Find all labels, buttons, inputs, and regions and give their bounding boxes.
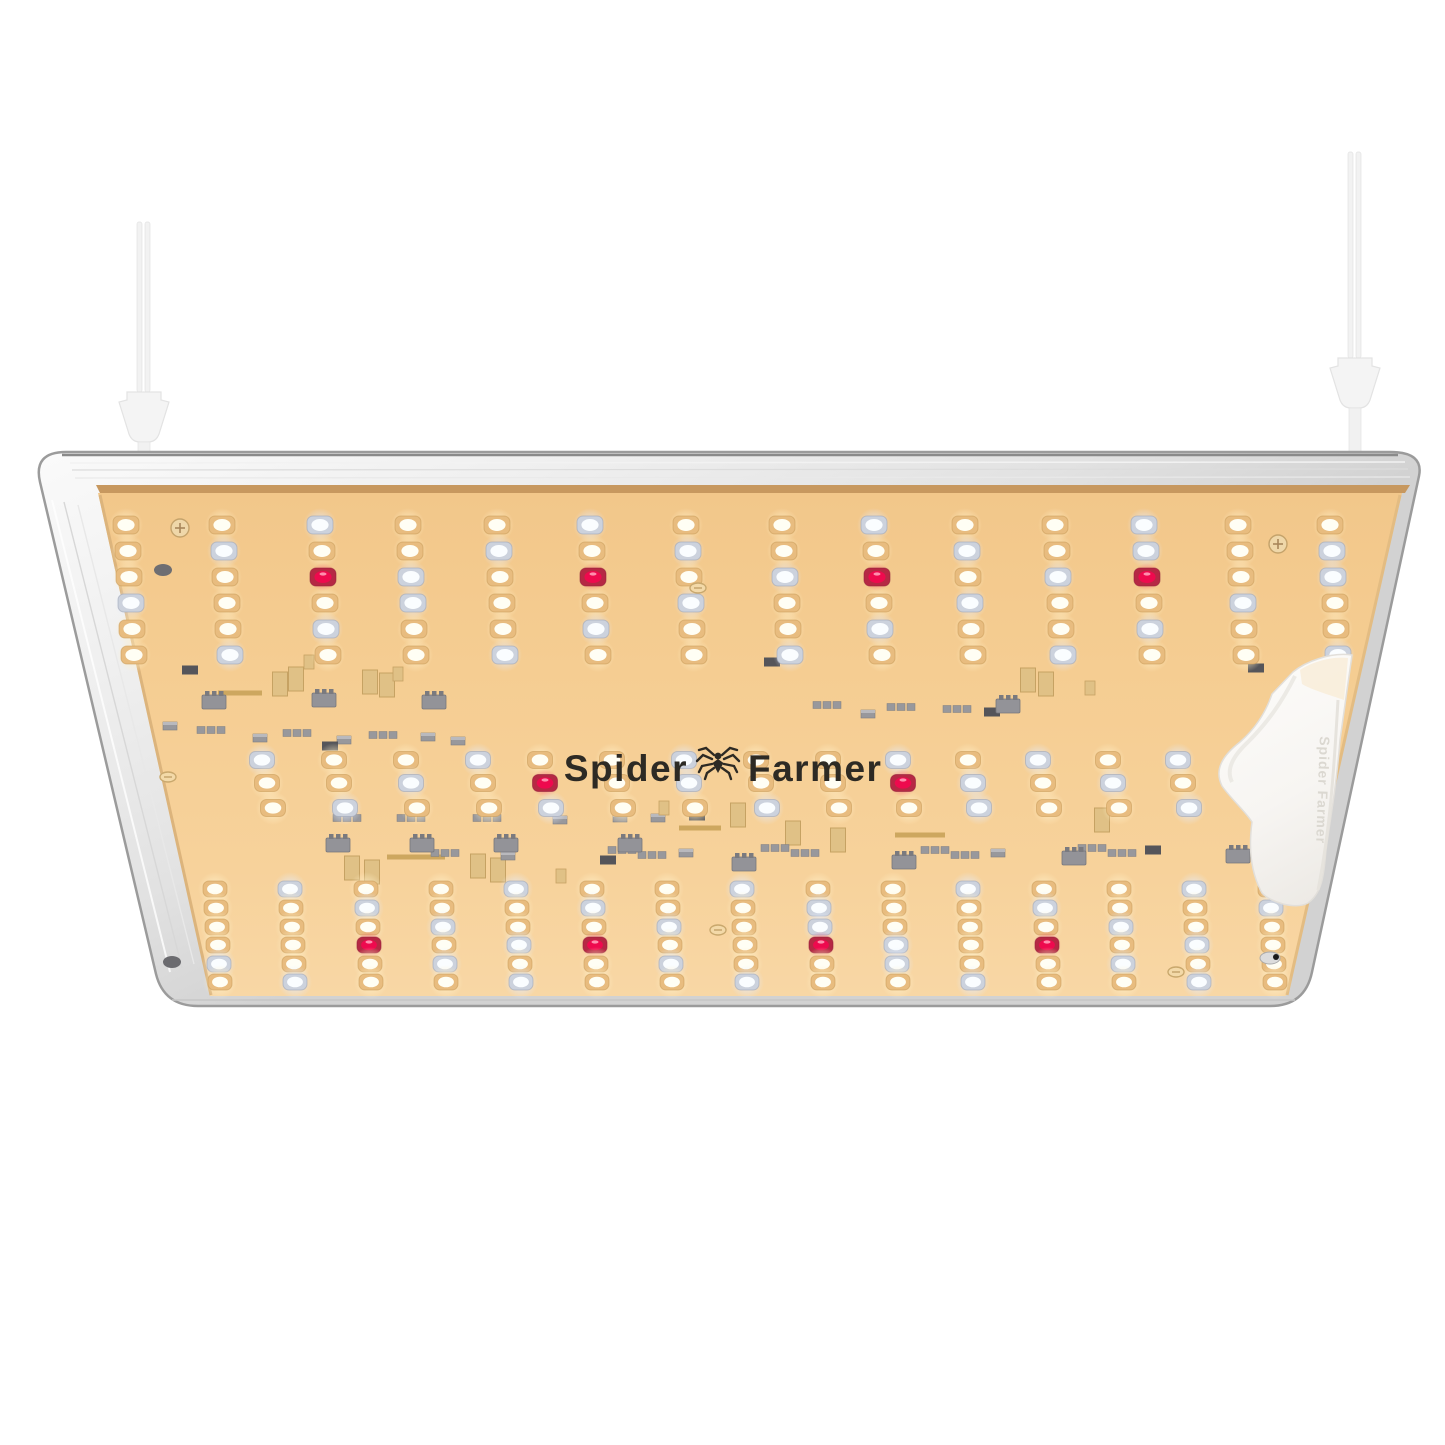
- led-warm-white: [400, 791, 434, 825]
- led-warm-white: [581, 638, 615, 672]
- component-gp: [1039, 672, 1054, 696]
- grow-light-image: Spider Farmer Spider Farmer: [0, 0, 1445, 1445]
- component-gp: [289, 667, 304, 691]
- led-warm-white: [1229, 638, 1263, 672]
- component-r: [991, 849, 1005, 857]
- component-gp: [380, 673, 395, 697]
- led-cool-white: [504, 965, 538, 999]
- led-cool-white: [1182, 965, 1216, 999]
- component-gb: [679, 826, 721, 831]
- component-r: [679, 849, 693, 857]
- mount-hole-left: [163, 956, 181, 968]
- led-warm-white: [311, 638, 345, 672]
- component-ic: [1062, 847, 1086, 865]
- component-gb: [895, 833, 945, 838]
- led-warm-white: [678, 791, 712, 825]
- led-warm-white: [892, 791, 926, 825]
- led-warm-white: [881, 965, 915, 999]
- component-r: [451, 737, 465, 745]
- rivet-hole: [710, 925, 726, 935]
- component-rc: [638, 852, 666, 859]
- cross-screw: [171, 519, 189, 537]
- frame-notch: [154, 564, 172, 576]
- component-ic: [732, 853, 756, 871]
- product-photo: Spider Farmer Spider Farmer: [0, 0, 1445, 1445]
- component-rc: [1108, 850, 1136, 857]
- component-ic: [422, 691, 446, 709]
- led-warm-white: [956, 638, 990, 672]
- led-warm-white: [203, 965, 237, 999]
- component-rc: [761, 845, 789, 852]
- led-cool-white: [730, 965, 764, 999]
- component-rd: [182, 666, 198, 675]
- led-warm-white: [1102, 791, 1136, 825]
- led-warm-white: [655, 965, 689, 999]
- component-rc: [921, 847, 949, 854]
- component-r: [501, 852, 515, 860]
- board-edge-strip: [96, 485, 1410, 493]
- component-gp: [831, 828, 846, 852]
- led-cool-white: [750, 791, 784, 825]
- led-cool-white: [1046, 638, 1080, 672]
- led-warm-white: [399, 638, 433, 672]
- led-warm-white: [256, 791, 290, 825]
- led-cool-white: [278, 965, 312, 999]
- component-ic: [312, 689, 336, 707]
- component-rd: [600, 856, 616, 865]
- component-ic: [892, 851, 916, 869]
- cross-screw: [1269, 535, 1287, 553]
- led-warm-white: [429, 965, 463, 999]
- component-ic: [618, 834, 642, 852]
- component-r: [861, 710, 875, 718]
- component-ic: [494, 834, 518, 852]
- mount-hole-right: [1260, 952, 1280, 964]
- component-gp: [363, 670, 378, 694]
- component-rc: [943, 706, 971, 713]
- component-ic: [1226, 845, 1250, 863]
- component-gs: [659, 801, 669, 815]
- led-cool-white: [1172, 791, 1206, 825]
- hanging-wire: [119, 222, 169, 456]
- component-r: [163, 722, 177, 730]
- led-cool-white: [328, 791, 362, 825]
- led-warm-white: [305, 534, 339, 568]
- component-gs: [393, 667, 403, 681]
- brushed-line: [70, 462, 1405, 463]
- logo-text-right: Farmer: [748, 748, 882, 789]
- led-warm-white: [1135, 638, 1169, 672]
- component-gp: [273, 672, 288, 696]
- rivet-hole: [690, 583, 706, 593]
- component-ic: [202, 691, 226, 709]
- led-cool-white: [488, 638, 522, 672]
- component-rc: [369, 732, 397, 739]
- component-rd: [1145, 846, 1161, 855]
- led-warm-white: [117, 638, 151, 672]
- component-gs: [556, 869, 566, 883]
- led-warm-white: [1258, 965, 1292, 999]
- component-gp: [471, 854, 486, 878]
- led-warm-white: [1032, 965, 1066, 999]
- led-cool-white: [534, 791, 568, 825]
- led-warm-white: [865, 638, 899, 672]
- rivet-hole: [1168, 967, 1184, 977]
- led-warm-white: [580, 965, 614, 999]
- component-gp: [731, 803, 746, 827]
- component-rc: [813, 702, 841, 709]
- led-cool-white: [1129, 534, 1163, 568]
- component-ic: [410, 834, 434, 852]
- led-warm-white: [575, 534, 609, 568]
- led-warm-white: [859, 534, 893, 568]
- led-warm-white: [354, 965, 388, 999]
- led-cool-white: [956, 965, 990, 999]
- component-r: [337, 736, 351, 744]
- led-warm-white: [822, 791, 856, 825]
- led-warm-white: [472, 791, 506, 825]
- component-r: [253, 734, 267, 742]
- component-ic: [326, 834, 350, 852]
- component-rc: [431, 850, 459, 857]
- led-warm-white: [806, 965, 840, 999]
- rivet-hole: [160, 772, 176, 782]
- led-warm-white: [677, 638, 711, 672]
- component-rc: [887, 704, 915, 711]
- component-gp: [1021, 668, 1036, 692]
- led-warm-white: [1032, 791, 1066, 825]
- component-rc: [283, 730, 311, 737]
- hanging-wire: [1330, 152, 1380, 456]
- led-warm-white: [606, 791, 640, 825]
- led-cool-white: [213, 638, 247, 672]
- component-r: [421, 733, 435, 741]
- logo-text-left: Spider: [564, 748, 688, 789]
- component-gs: [1085, 681, 1095, 695]
- component-rc: [951, 852, 979, 859]
- component-ic: [996, 695, 1020, 713]
- component-gp: [786, 821, 801, 845]
- component-rc: [791, 850, 819, 857]
- hanging-wires: [119, 152, 1380, 456]
- led-warm-white: [1107, 965, 1141, 999]
- led-cool-white: [962, 791, 996, 825]
- led-cool-white: [773, 638, 807, 672]
- component-rc: [197, 727, 225, 734]
